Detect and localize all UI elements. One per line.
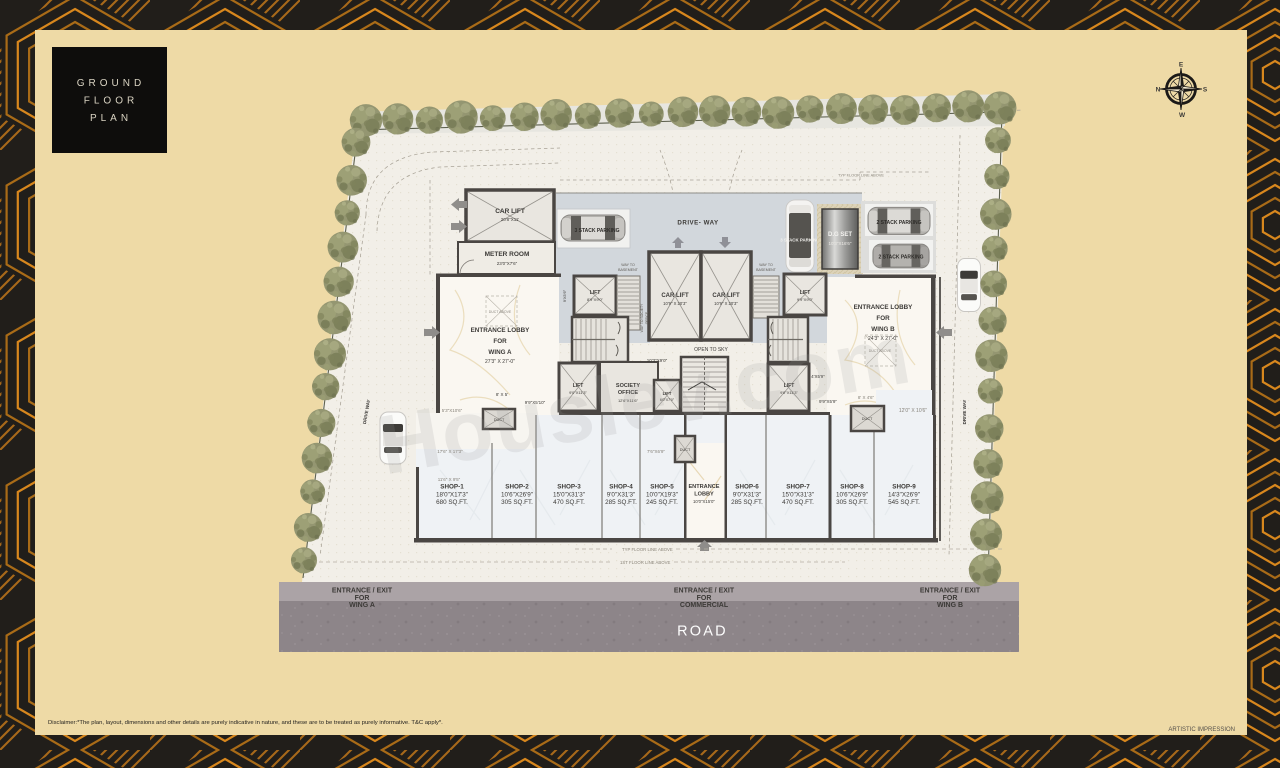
svg-text:SHOP-8: SHOP-8 [840, 484, 864, 491]
svg-text:S: S [1203, 87, 1208, 94]
svg-text:23'0"X7'6": 23'0"X7'6" [497, 261, 518, 266]
svg-text:BASEMENT: BASEMENT [618, 268, 639, 272]
svg-text:ENTRANCE / EXIT: ENTRANCE / EXIT [332, 588, 393, 595]
svg-text:7'6"X6'9": 7'6"X6'9" [647, 449, 665, 454]
svg-text:10'9" X 20'3": 10'9" X 20'3" [714, 301, 738, 306]
svg-text:CAR LIFT: CAR LIFT [495, 208, 525, 215]
svg-text:9'X5'6": 9'X5'6" [562, 289, 567, 302]
svg-text:COMMERCIAL: COMMERCIAL [680, 602, 729, 609]
svg-text:3 STACK PARKING: 3 STACK PARKING [780, 238, 820, 243]
svg-text:10'0"X15'0": 10'0"X15'0" [693, 499, 715, 504]
svg-text:545 SQ.FT.: 545 SQ.FT. [888, 499, 920, 506]
svg-text:SHOP-5: SHOP-5 [650, 484, 674, 491]
svg-text:FOR: FOR [943, 595, 958, 602]
svg-text:DRIVE- WAY: DRIVE- WAY [677, 220, 719, 227]
svg-text:2 STACK PARKING: 2 STACK PARKING [876, 220, 921, 226]
svg-text:10'0"X19'3": 10'0"X19'3" [646, 491, 678, 498]
svg-text:680 SQ.FT.: 680 SQ.FT. [436, 499, 468, 506]
svg-text:LOBBY: LOBBY [694, 492, 714, 498]
svg-text:20'8"X11': 20'8"X11' [501, 217, 520, 222]
svg-text:9'9"X9'0": 9'9"X9'0" [797, 297, 814, 302]
svg-text:DUCT ABOVE: DUCT ABOVE [489, 310, 512, 314]
svg-text:WING A: WING A [488, 349, 512, 356]
svg-text:WING B: WING B [937, 602, 963, 609]
svg-text:ENTRANCE LOBBY: ENTRANCE LOBBY [471, 327, 531, 334]
svg-text:OFFICE: OFFICE [645, 311, 649, 324]
svg-text:SHOP-2: SHOP-2 [505, 484, 529, 491]
svg-text:FOR: FOR [355, 595, 370, 602]
svg-text:470 SQ.FT.: 470 SQ.FT. [782, 499, 814, 506]
svg-text:305 SQ.FT.: 305 SQ.FT. [836, 499, 868, 506]
svg-text:GROUND: GROUND [77, 78, 145, 89]
svg-text:10'9" X 20'3": 10'9" X 20'3" [663, 301, 687, 306]
svg-text:SHOP-3: SHOP-3 [557, 484, 581, 491]
svg-text:CAR LIFT: CAR LIFT [661, 293, 689, 299]
svg-text:12'0" X 10'6": 12'0" X 10'6" [899, 408, 927, 414]
svg-text:Disclaimer:*The plan, layout,: Disclaimer:*The plan, layout, dimensions… [48, 720, 443, 726]
svg-text:D.G SET: D.G SET [828, 232, 852, 238]
svg-text:FOR: FOR [493, 338, 507, 345]
svg-text:SHOP-4: SHOP-4 [609, 484, 633, 491]
svg-text:3 STACK PARKING: 3 STACK PARKING [574, 228, 619, 234]
svg-text:470 SQ.FT.: 470 SQ.FT. [553, 499, 585, 506]
svg-text:305 SQ.FT.: 305 SQ.FT. [501, 499, 533, 506]
svg-text:1ST FLOOR LINE ABOVE: 1ST FLOOR LINE ABOVE [620, 560, 670, 565]
svg-text:245 SQ.FT.: 245 SQ.FT. [646, 499, 678, 506]
svg-text:ENTRANCE / EXIT: ENTRANCE / EXIT [920, 588, 981, 595]
svg-text:LIFT: LIFT [800, 290, 811, 296]
svg-text:14'3"X26'9": 14'3"X26'9" [888, 491, 920, 498]
svg-text:ARTISTIC IMPRESSION: ARTISTIC IMPRESSION [1168, 727, 1235, 733]
svg-text:SHOP-1: SHOP-1 [440, 484, 464, 491]
svg-text:SHOP-6: SHOP-6 [735, 484, 759, 491]
svg-text:9'0"X31'3": 9'0"X31'3" [607, 491, 636, 498]
svg-text:CAR LIFT: CAR LIFT [712, 293, 740, 299]
svg-text:PLAN: PLAN [90, 113, 132, 124]
svg-text:10'6"X26'9": 10'6"X26'9" [501, 491, 533, 498]
svg-text:2 STACK PARKING: 2 STACK PARKING [878, 255, 923, 261]
svg-text:BASEMENT: BASEMENT [756, 268, 777, 272]
svg-text:SHOP-7: SHOP-7 [786, 484, 810, 491]
svg-text:TYP FLOOR LINE ABOVE: TYP FLOOR LINE ABOVE [622, 547, 673, 552]
svg-text:FLOOR: FLOOR [84, 96, 138, 107]
svg-text:METER ROOM: METER ROOM [485, 251, 530, 258]
svg-text:ENTRANCE: ENTRANCE [688, 484, 719, 490]
svg-text:DRIVE WAY: DRIVE WAY [962, 400, 967, 425]
svg-text:9'0"X31'3": 9'0"X31'3" [733, 491, 762, 498]
svg-text:SHOP-9: SHOP-9 [892, 484, 916, 491]
svg-text:DUCT: DUCT [862, 417, 873, 421]
svg-text:N: N [1156, 87, 1161, 94]
svg-text:285 SQ.FT.: 285 SQ.FT. [605, 499, 637, 506]
svg-text:10'6"X26'9": 10'6"X26'9" [836, 491, 868, 498]
svg-text:27'3" X 27'-0": 27'3" X 27'-0" [485, 359, 515, 365]
svg-text:8'9"X9'0": 8'9"X9'0" [587, 297, 604, 302]
svg-text:WING A: WING A [349, 602, 375, 609]
svg-text:LIFT: LIFT [590, 290, 601, 296]
svg-text:E: E [1179, 62, 1184, 69]
svg-text:WAY TO: WAY TO [621, 263, 635, 267]
svg-text:285 SQ.FT.: 285 SQ.FT. [731, 499, 763, 506]
svg-text:WAY TO SOCIETY: WAY TO SOCIETY [640, 303, 644, 332]
svg-text:ENTRANCE / EXIT: ENTRANCE / EXIT [674, 588, 735, 595]
svg-text:DUCT: DUCT [680, 448, 691, 452]
svg-text:ROAD: ROAD [677, 624, 728, 640]
svg-text:15'0"X31'3": 15'0"X31'3" [782, 491, 814, 498]
svg-text:WAY TO: WAY TO [759, 263, 773, 267]
svg-text:10'3"X16'6": 10'3"X16'6" [829, 241, 852, 246]
svg-text:FOR: FOR [697, 595, 712, 602]
svg-text:18'0"X17'3": 18'0"X17'3" [436, 491, 468, 498]
svg-text:15'0"X31'3": 15'0"X31'3" [553, 491, 585, 498]
svg-text:W: W [1179, 112, 1186, 119]
svg-text:TYP FLOOR LINE ABOVE: TYP FLOOR LINE ABOVE [838, 173, 884, 178]
